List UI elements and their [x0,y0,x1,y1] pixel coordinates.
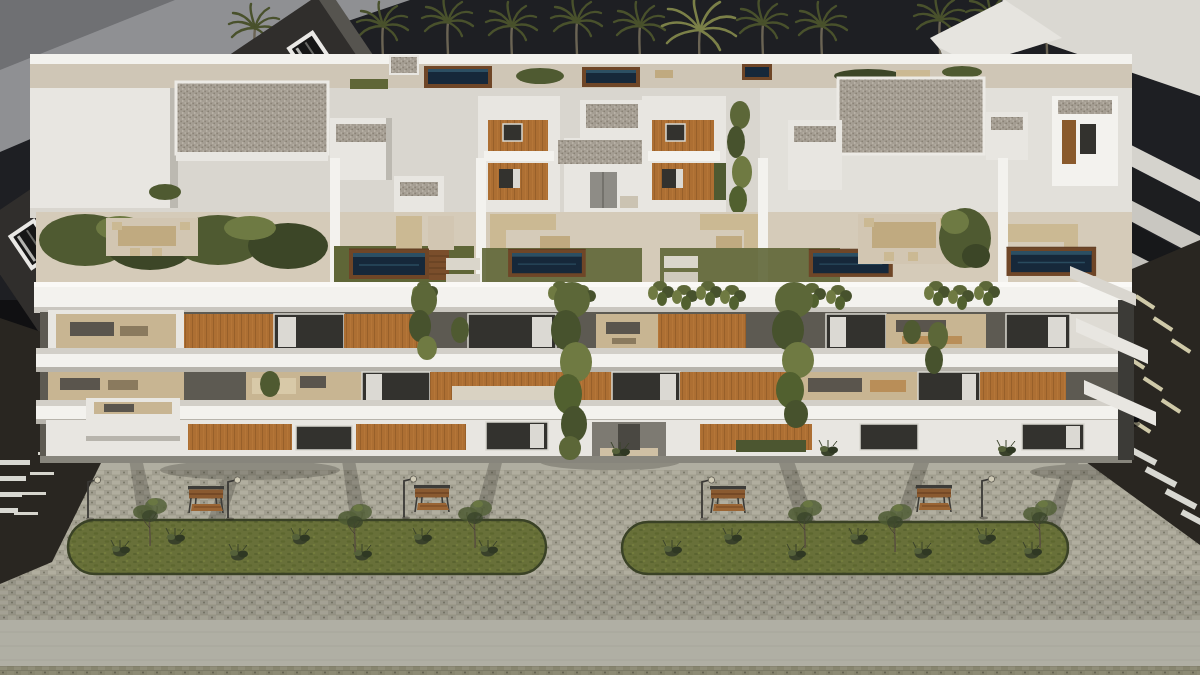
window [612,372,680,402]
window [1022,424,1084,450]
window [826,314,886,350]
terrace-pool [349,249,429,279]
render-viewport [0,0,1200,675]
bottom-paver-strip [0,666,1200,675]
green-roof-strip [350,79,388,89]
main-building [30,54,1156,463]
terrace-pool [508,249,586,277]
window [274,314,344,350]
window [918,372,980,402]
sidewalk-smooth-band [0,620,1200,668]
balcony-plant [451,317,469,343]
window [1006,314,1070,350]
gap-hedge [149,184,181,200]
gravel-roof [838,78,984,154]
wall-vine [714,163,726,200]
window [362,372,430,402]
planter-hedge [736,440,806,452]
terrace-dining-left [106,218,198,256]
window [860,424,918,450]
roof-volume-wood [1052,96,1118,186]
terrace-tree [939,208,991,268]
balcony-plant [260,371,280,397]
building-base-shadow [40,456,1132,463]
penthouse-duplex-right [642,96,726,214]
window [468,314,556,350]
plaza-paver-band-lower [0,574,1200,622]
gravel-roof [176,82,328,154]
window [486,422,548,450]
balcony-plant [903,320,921,344]
balcony-sofa [452,386,562,400]
ground-balcony-box [86,398,180,441]
window [296,426,352,450]
penthouse-duplex-left [478,96,560,214]
